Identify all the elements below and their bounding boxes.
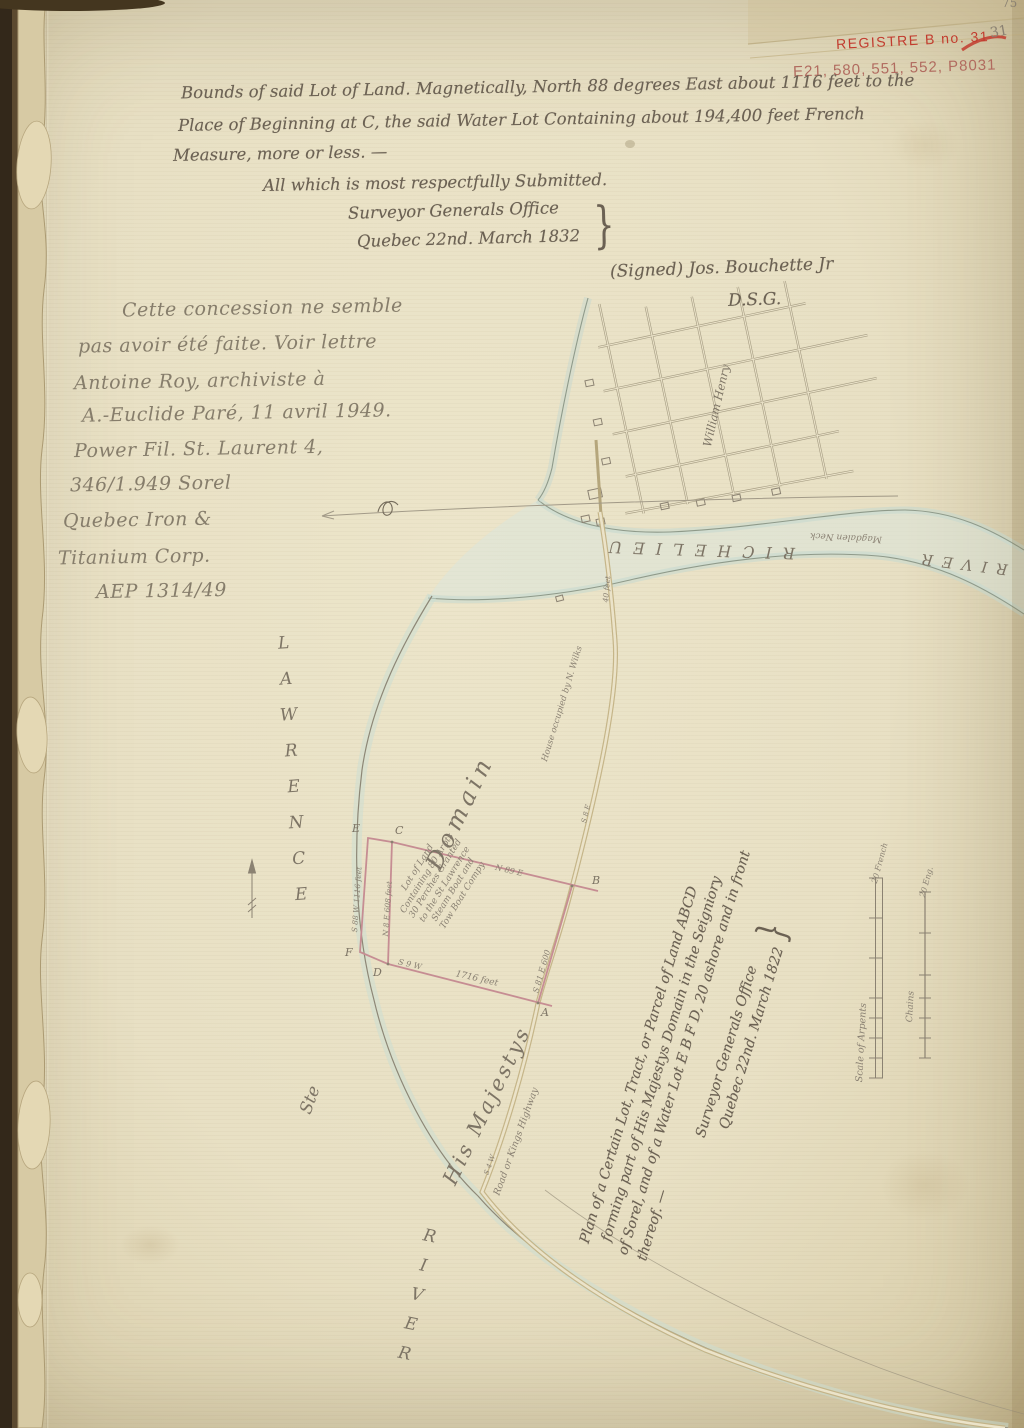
report-brace: } — [593, 195, 615, 254]
lot-corner-a: A — [541, 1006, 549, 1019]
pencil-note-line-6: 346/1.949 Sorel — [70, 472, 232, 497]
pencil-note-line-5: Power Fil. St. Laurent 4, — [74, 436, 324, 462]
page-number: 31 — [989, 23, 1009, 42]
lot-corner-f: F — [345, 946, 353, 959]
north-arrow — [248, 860, 256, 918]
corner-point-b — [571, 885, 574, 888]
lot-corner-e: E — [352, 822, 360, 835]
lot-corner-c: C — [395, 824, 403, 837]
page: { "annotations": { "stamp": "REGISTRE B … — [0, 0, 1024, 1428]
torn-binding-edge — [0, 0, 165, 1428]
pencil-note-line-8: Titanium Corp. — [58, 545, 211, 570]
pencil-note-line-7: Quebec Iron & — [63, 508, 212, 533]
report-dsg: D.S.G. — [728, 289, 782, 311]
scale-bar-arpents — [869, 878, 883, 1078]
corner-point-a — [537, 1002, 540, 1005]
right-page-edge — [1012, 0, 1024, 1428]
town-buildings — [554, 346, 781, 535]
pencil-note-line-3: Antoine Roy, archiviste à — [74, 368, 326, 394]
corner-point-c — [391, 841, 394, 844]
page-number-top: 75 — [1002, 0, 1017, 10]
pencil-note-line-9: AEP 1314/49 — [96, 579, 227, 603]
house-icon — [556, 595, 564, 602]
corner-point-d — [387, 963, 390, 966]
pencil-line — [322, 496, 898, 516]
lot-corner-d: D — [373, 966, 382, 979]
lot-corner-b: B — [592, 874, 600, 887]
scale-bar-chains — [919, 892, 931, 1058]
report-line-3: Measure, more or less. — — [173, 142, 388, 165]
pencil-loop-scribble — [378, 502, 398, 516]
